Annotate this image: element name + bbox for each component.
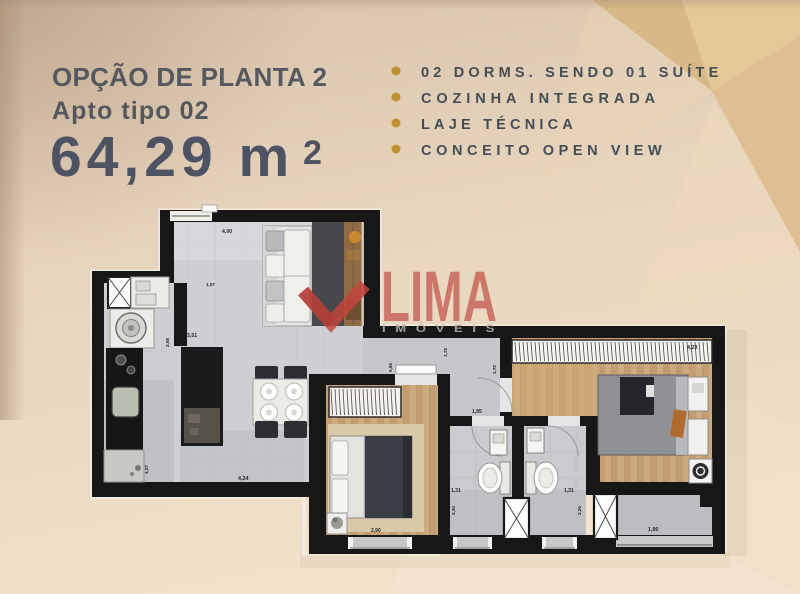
svg-text:4,00: 4,00 [222, 229, 232, 235]
svg-text:1,07: 1,07 [206, 282, 215, 287]
svg-text:2,08: 2,08 [165, 338, 170, 347]
svg-text:1,72: 1,72 [443, 348, 448, 357]
svg-text:4,27: 4,27 [144, 465, 149, 474]
svg-text:1,72: 1,72 [492, 365, 497, 374]
svg-text:2,90: 2,90 [371, 528, 381, 534]
svg-text:Apto tipo 02: Apto tipo 02 [52, 97, 210, 125]
svg-text:2,26: 2,26 [577, 506, 582, 515]
svg-text:1,95: 1,95 [472, 409, 482, 415]
svg-text:1,31: 1,31 [451, 488, 461, 494]
svg-text:02 DORMS. SENDO 01 SUÍTE: 02 DORMS. SENDO 01 SUÍTE [421, 64, 722, 81]
svg-text:64,29 m: 64,29 m [50, 125, 294, 189]
svg-text:4,23: 4,23 [687, 345, 698, 351]
svg-text:4,24: 4,24 [238, 476, 249, 482]
svg-text:2,30: 2,30 [451, 506, 456, 515]
svg-text:IMÓVEIS: IMÓVEIS [382, 322, 504, 335]
svg-text:LAJE TÉCNICA: LAJE TÉCNICA [421, 116, 577, 133]
svg-text:1,90: 1,90 [648, 527, 659, 533]
svg-text:COZINHA INTEGRADA: COZINHA INTEGRADA [421, 91, 660, 107]
svg-text:OPÇÃO DE PLANTA 2: OPÇÃO DE PLANTA 2 [52, 62, 327, 92]
svg-text:1,31: 1,31 [564, 488, 574, 494]
svg-text:2: 2 [303, 134, 322, 172]
svg-text:5,85: 5,85 [388, 363, 393, 372]
svg-text:CONCEITO OPEN VIEW: CONCEITO OPEN VIEW [421, 143, 666, 159]
svg-text:3,51: 3,51 [187, 333, 197, 339]
